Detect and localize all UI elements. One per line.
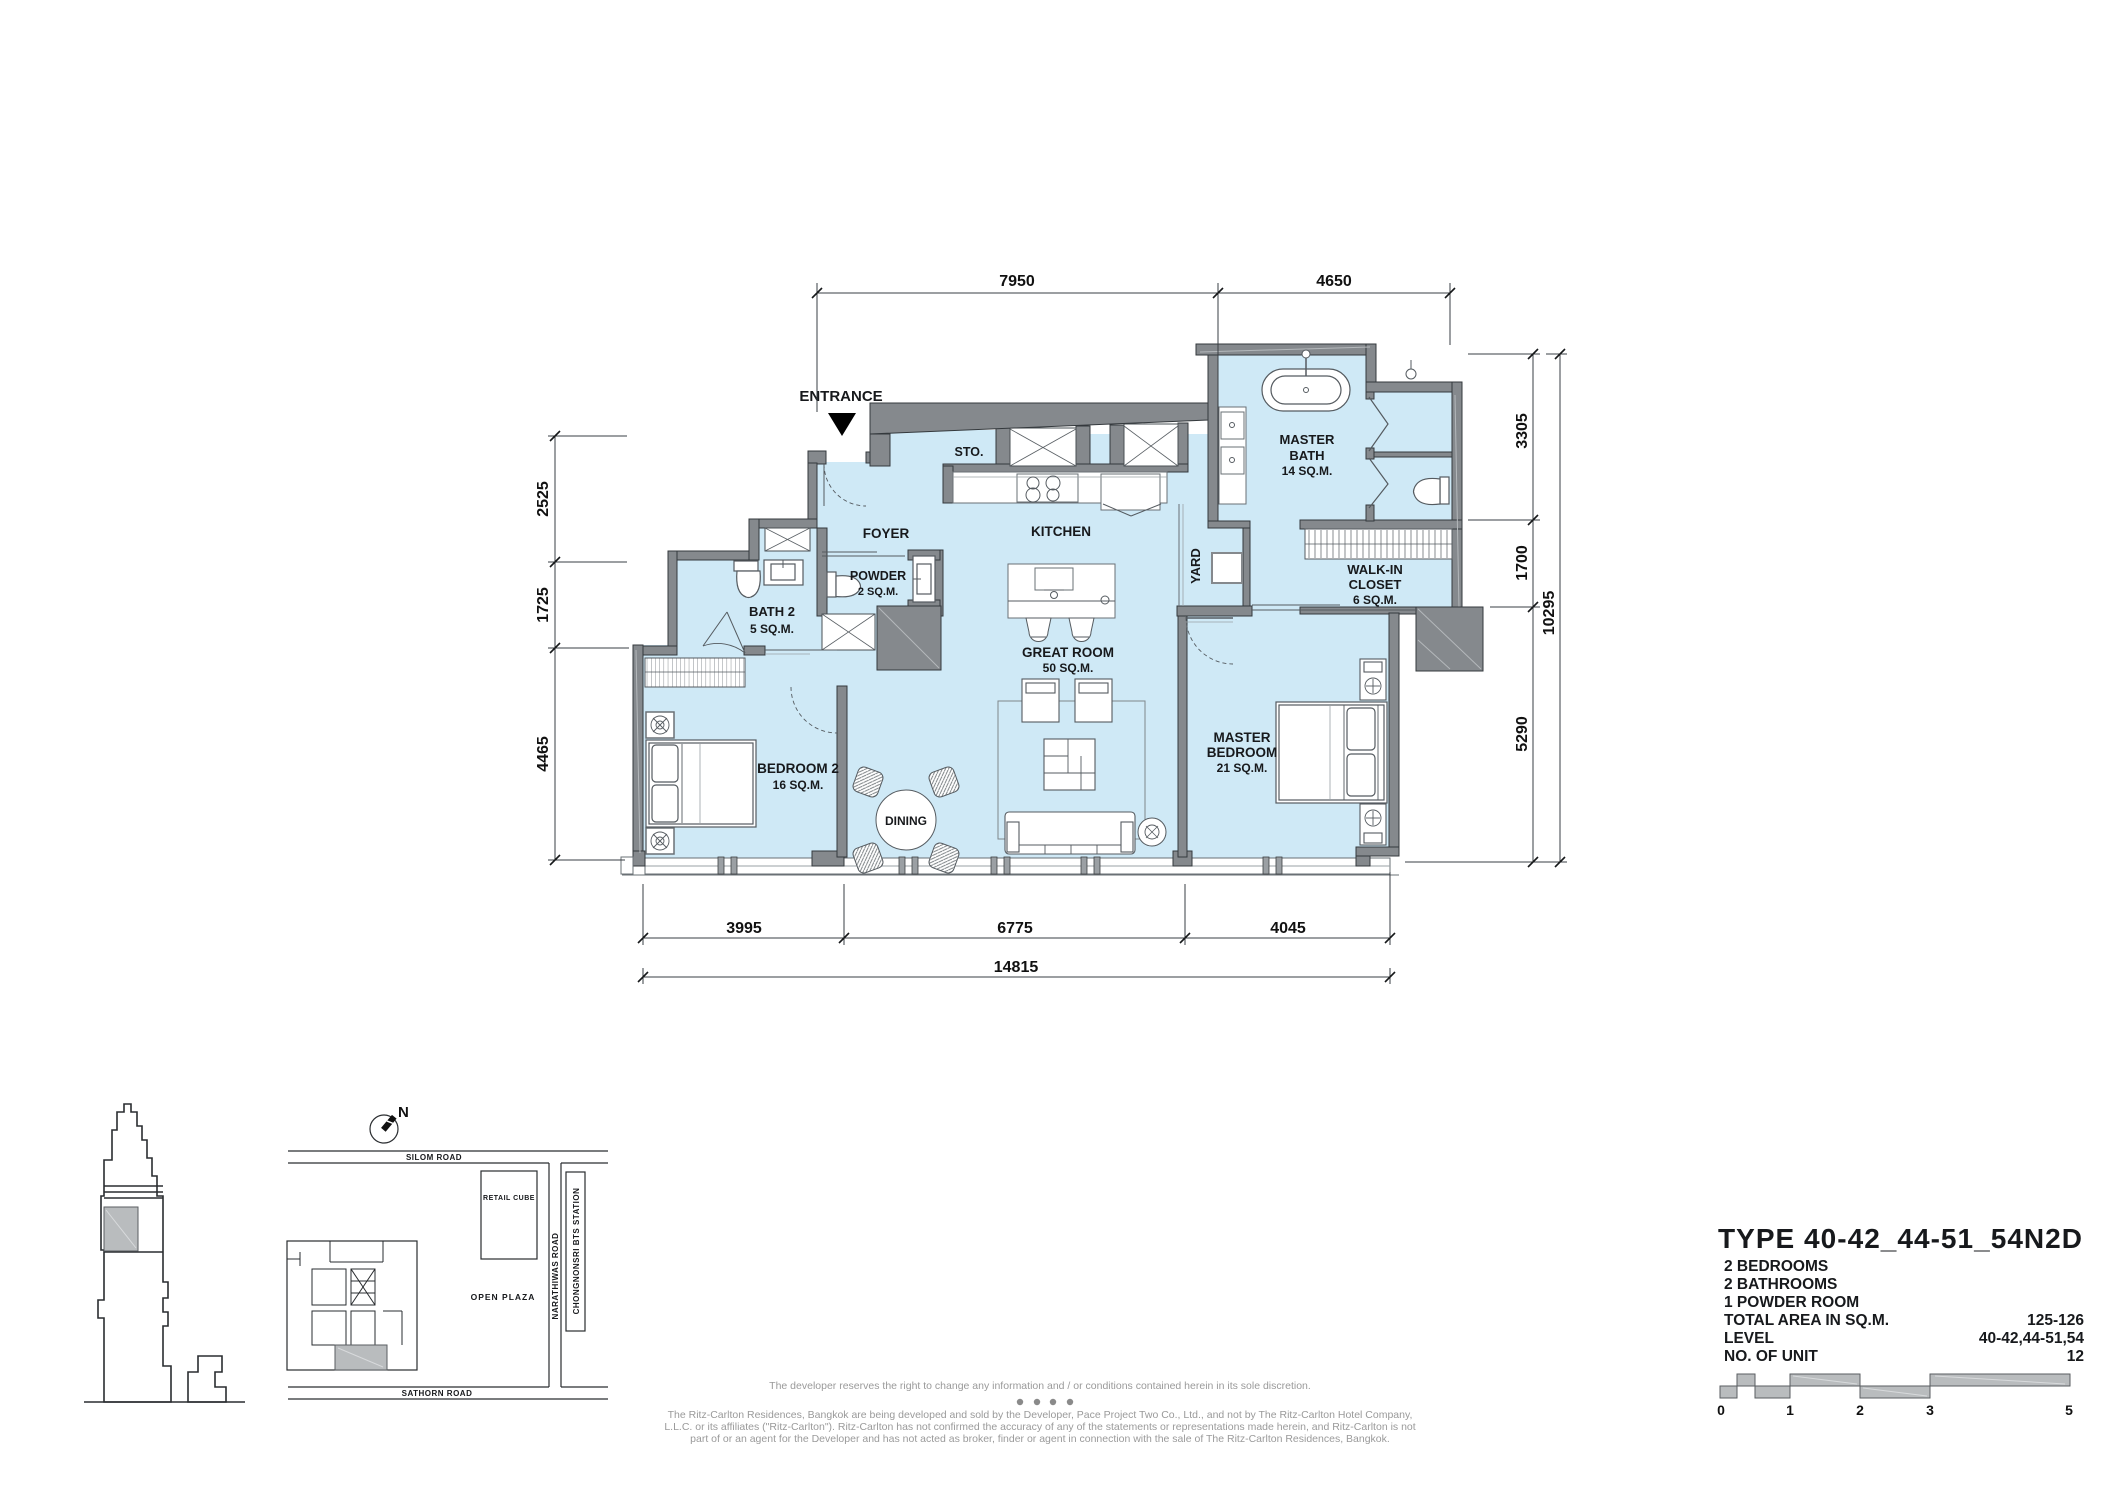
svg-text:N: N — [398, 1104, 409, 1121]
svg-text:NO. OF UNIT: NO. OF UNIT — [1724, 1348, 1818, 1365]
svg-text:1725: 1725 — [535, 587, 552, 623]
svg-text:LEVEL: LEVEL — [1724, 1330, 1774, 1347]
svg-text:4650: 4650 — [1316, 273, 1352, 290]
svg-text:1: 1 — [1786, 1402, 1794, 1418]
svg-text:2 BEDROOMS: 2 BEDROOMS — [1724, 1258, 1828, 1275]
svg-text:GREAT ROOM: GREAT ROOM — [1022, 645, 1114, 660]
svg-text:2 BATHROOMS: 2 BATHROOMS — [1724, 1276, 1837, 1293]
svg-text:SILOM ROAD: SILOM ROAD — [406, 1153, 462, 1162]
svg-text:L.L.C. or its affiliates ("Rit: L.L.C. or its affiliates ("Ritz-Carlton"… — [664, 1421, 1415, 1433]
svg-text:2 SQ.M.: 2 SQ.M. — [858, 586, 898, 598]
svg-text:6775: 6775 — [997, 920, 1033, 937]
svg-text:5 SQ.M.: 5 SQ.M. — [750, 622, 794, 636]
svg-text:10295: 10295 — [1541, 591, 1558, 636]
svg-text:RETAIL CUBE: RETAIL CUBE — [483, 1195, 535, 1202]
svg-text:125-126: 125-126 — [2027, 1312, 2084, 1329]
svg-text:YARD: YARD — [1188, 548, 1203, 584]
svg-text:The Ritz-Carlton Residences, B: The Ritz-Carlton Residences, Bangkok are… — [668, 1409, 1413, 1421]
svg-text:14 SQ.M.: 14 SQ.M. — [1282, 464, 1333, 478]
svg-text:BEDROOM 2: BEDROOM 2 — [757, 761, 839, 776]
svg-text:40-42,44-51,54: 40-42,44-51,54 — [1979, 1330, 2085, 1347]
svg-text:KITCHEN: KITCHEN — [1031, 524, 1091, 539]
svg-text:14815: 14815 — [994, 959, 1039, 976]
svg-text:5: 5 — [2065, 1402, 2073, 1418]
svg-text:2525: 2525 — [535, 481, 552, 517]
svg-text:7950: 7950 — [999, 273, 1035, 290]
svg-text:CHONGNONSRI BTS STATION: CHONGNONSRI BTS STATION — [572, 1188, 581, 1315]
svg-text:6 SQ.M.: 6 SQ.M. — [1353, 593, 1397, 607]
svg-text:4045: 4045 — [1270, 920, 1306, 937]
svg-text:POWDER: POWDER — [850, 569, 906, 583]
svg-text:SATHORN ROAD: SATHORN ROAD — [402, 1389, 473, 1398]
svg-text:1700: 1700 — [1514, 545, 1531, 581]
svg-text:DINING: DINING — [885, 814, 927, 828]
svg-text:50 SQ.M.: 50 SQ.M. — [1043, 661, 1094, 675]
svg-text:2: 2 — [1856, 1402, 1864, 1418]
svg-text:MASTER: MASTER — [1214, 730, 1271, 745]
svg-text:ENTRANCE: ENTRANCE — [799, 388, 882, 405]
svg-text:WALK-IN: WALK-IN — [1347, 562, 1403, 577]
svg-text:BATH 2: BATH 2 — [749, 604, 795, 619]
svg-text:TOTAL AREA IN SQ.M.: TOTAL AREA IN SQ.M. — [1724, 1312, 1889, 1329]
svg-text:The developer reserves the rig: The developer reserves the right to chan… — [769, 1380, 1311, 1392]
svg-text:0: 0 — [1717, 1402, 1725, 1418]
svg-text:FOYER: FOYER — [863, 526, 910, 541]
svg-text:TYPE 40-42_44-51_54N2D: TYPE 40-42_44-51_54N2D — [1718, 1223, 2082, 1254]
svg-text:3305: 3305 — [1514, 413, 1531, 449]
svg-text:16 SQ.M.: 16 SQ.M. — [773, 778, 824, 792]
svg-text:12: 12 — [2067, 1348, 2084, 1365]
svg-text:1 POWDER ROOM: 1 POWDER ROOM — [1724, 1294, 1859, 1311]
svg-text:BEDROOM: BEDROOM — [1207, 745, 1278, 760]
svg-text:4465: 4465 — [535, 736, 552, 772]
svg-text:OPEN PLAZA: OPEN PLAZA — [471, 1292, 536, 1302]
svg-text:MASTER: MASTER — [1280, 432, 1336, 447]
svg-text:CLOSET: CLOSET — [1349, 577, 1402, 592]
svg-text:3: 3 — [1926, 1402, 1934, 1418]
svg-text:3995: 3995 — [726, 920, 762, 937]
svg-text:NARATHIWAS ROAD: NARATHIWAS ROAD — [551, 1233, 560, 1320]
svg-text:21 SQ.M.: 21 SQ.M. — [1217, 761, 1268, 775]
svg-text:BATH: BATH — [1289, 448, 1324, 463]
svg-text:part of or an agent for the De: part of or an agent for the Developer an… — [690, 1433, 1390, 1445]
svg-text:STO.: STO. — [955, 445, 984, 459]
svg-text:5290: 5290 — [1514, 716, 1531, 752]
